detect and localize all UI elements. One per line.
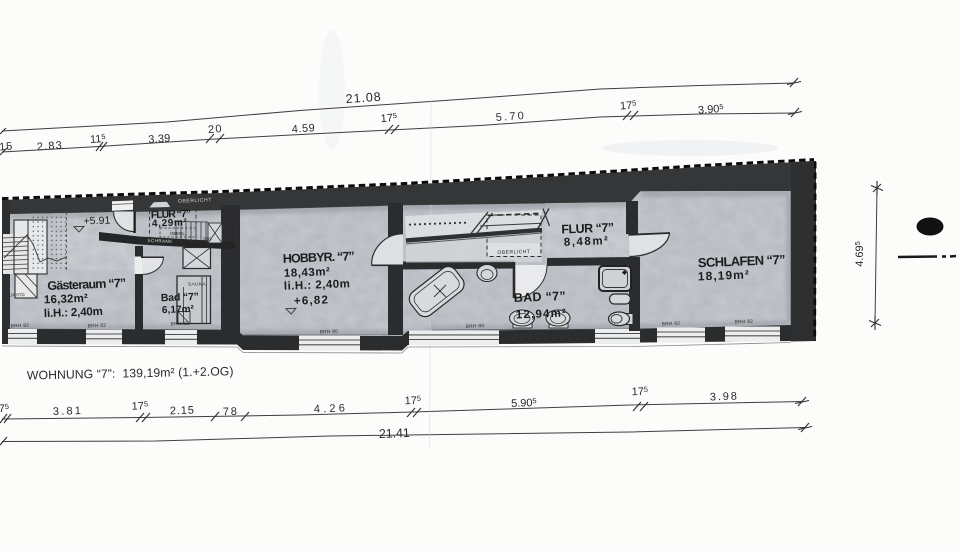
svg-text:20: 20 <box>208 123 222 136</box>
svg-text:4.59: 4.59 <box>291 122 315 136</box>
svg-text:3.98: 3.98 <box>710 391 737 404</box>
svg-text:STG: STG <box>203 237 212 242</box>
svg-text:6,17m²: 6,17m² <box>162 304 195 316</box>
svg-text:li.H.: 2,40m: li.H.: 2,40m <box>44 306 103 320</box>
svg-text:3.81: 3.81 <box>53 405 81 418</box>
svg-text:Bad “7”: Bad “7” <box>161 291 199 304</box>
svg-text:4.26: 4.26 <box>314 402 345 415</box>
svg-text:BRH 82: BRH 82 <box>735 319 754 326</box>
svg-text:BRH 80: BRH 80 <box>466 323 485 330</box>
svg-text:BAD “7”: BAD “7” <box>514 289 566 305</box>
svg-text:16,32m²: 16,32m² <box>44 293 89 307</box>
svg-text:21.08: 21.08 <box>345 90 381 106</box>
svg-text:+5.91: +5.91 <box>83 215 111 228</box>
svg-text:HOBBYR. “7”: HOBBYR. “7” <box>283 249 355 266</box>
svg-text:12,94m²: 12,94m² <box>516 308 567 322</box>
svg-text:OBERLICHT: OBERLICHT <box>497 249 530 256</box>
svg-text:14 STG: 14 STG <box>10 292 26 298</box>
svg-text:15: 15 <box>0 141 13 154</box>
svg-text:BRH 82: BRH 82 <box>171 321 190 328</box>
svg-text:BRH 82: BRH 82 <box>11 323 30 330</box>
svg-text:BRH 80: BRH 80 <box>320 329 339 336</box>
svg-text:+6,82: +6,82 <box>294 294 328 307</box>
svg-text:2.83: 2.83 <box>36 140 62 154</box>
svg-text:21.41: 21.41 <box>379 426 411 441</box>
svg-text:BRH 82: BRH 82 <box>88 323 107 330</box>
svg-text:FLUR “7”: FLUR “7” <box>561 220 614 236</box>
svg-text:3.39: 3.39 <box>148 133 171 147</box>
svg-text:BRH 82: BRH 82 <box>662 321 681 328</box>
svg-text:OBERL.: OBERL. <box>170 231 186 236</box>
svg-text:18,19m²: 18,19m² <box>698 268 749 284</box>
svg-text:18,43m²: 18,43m² <box>284 266 331 280</box>
svg-text:2.15: 2.15 <box>170 405 194 418</box>
svg-text:4,29m²: 4,29m² <box>152 217 188 229</box>
svg-text:5.70: 5.70 <box>495 110 524 124</box>
svg-text:li.H.: 2,40m: li.H.: 2,40m <box>284 278 350 293</box>
svg-text:SAUNA: SAUNA <box>188 282 207 288</box>
